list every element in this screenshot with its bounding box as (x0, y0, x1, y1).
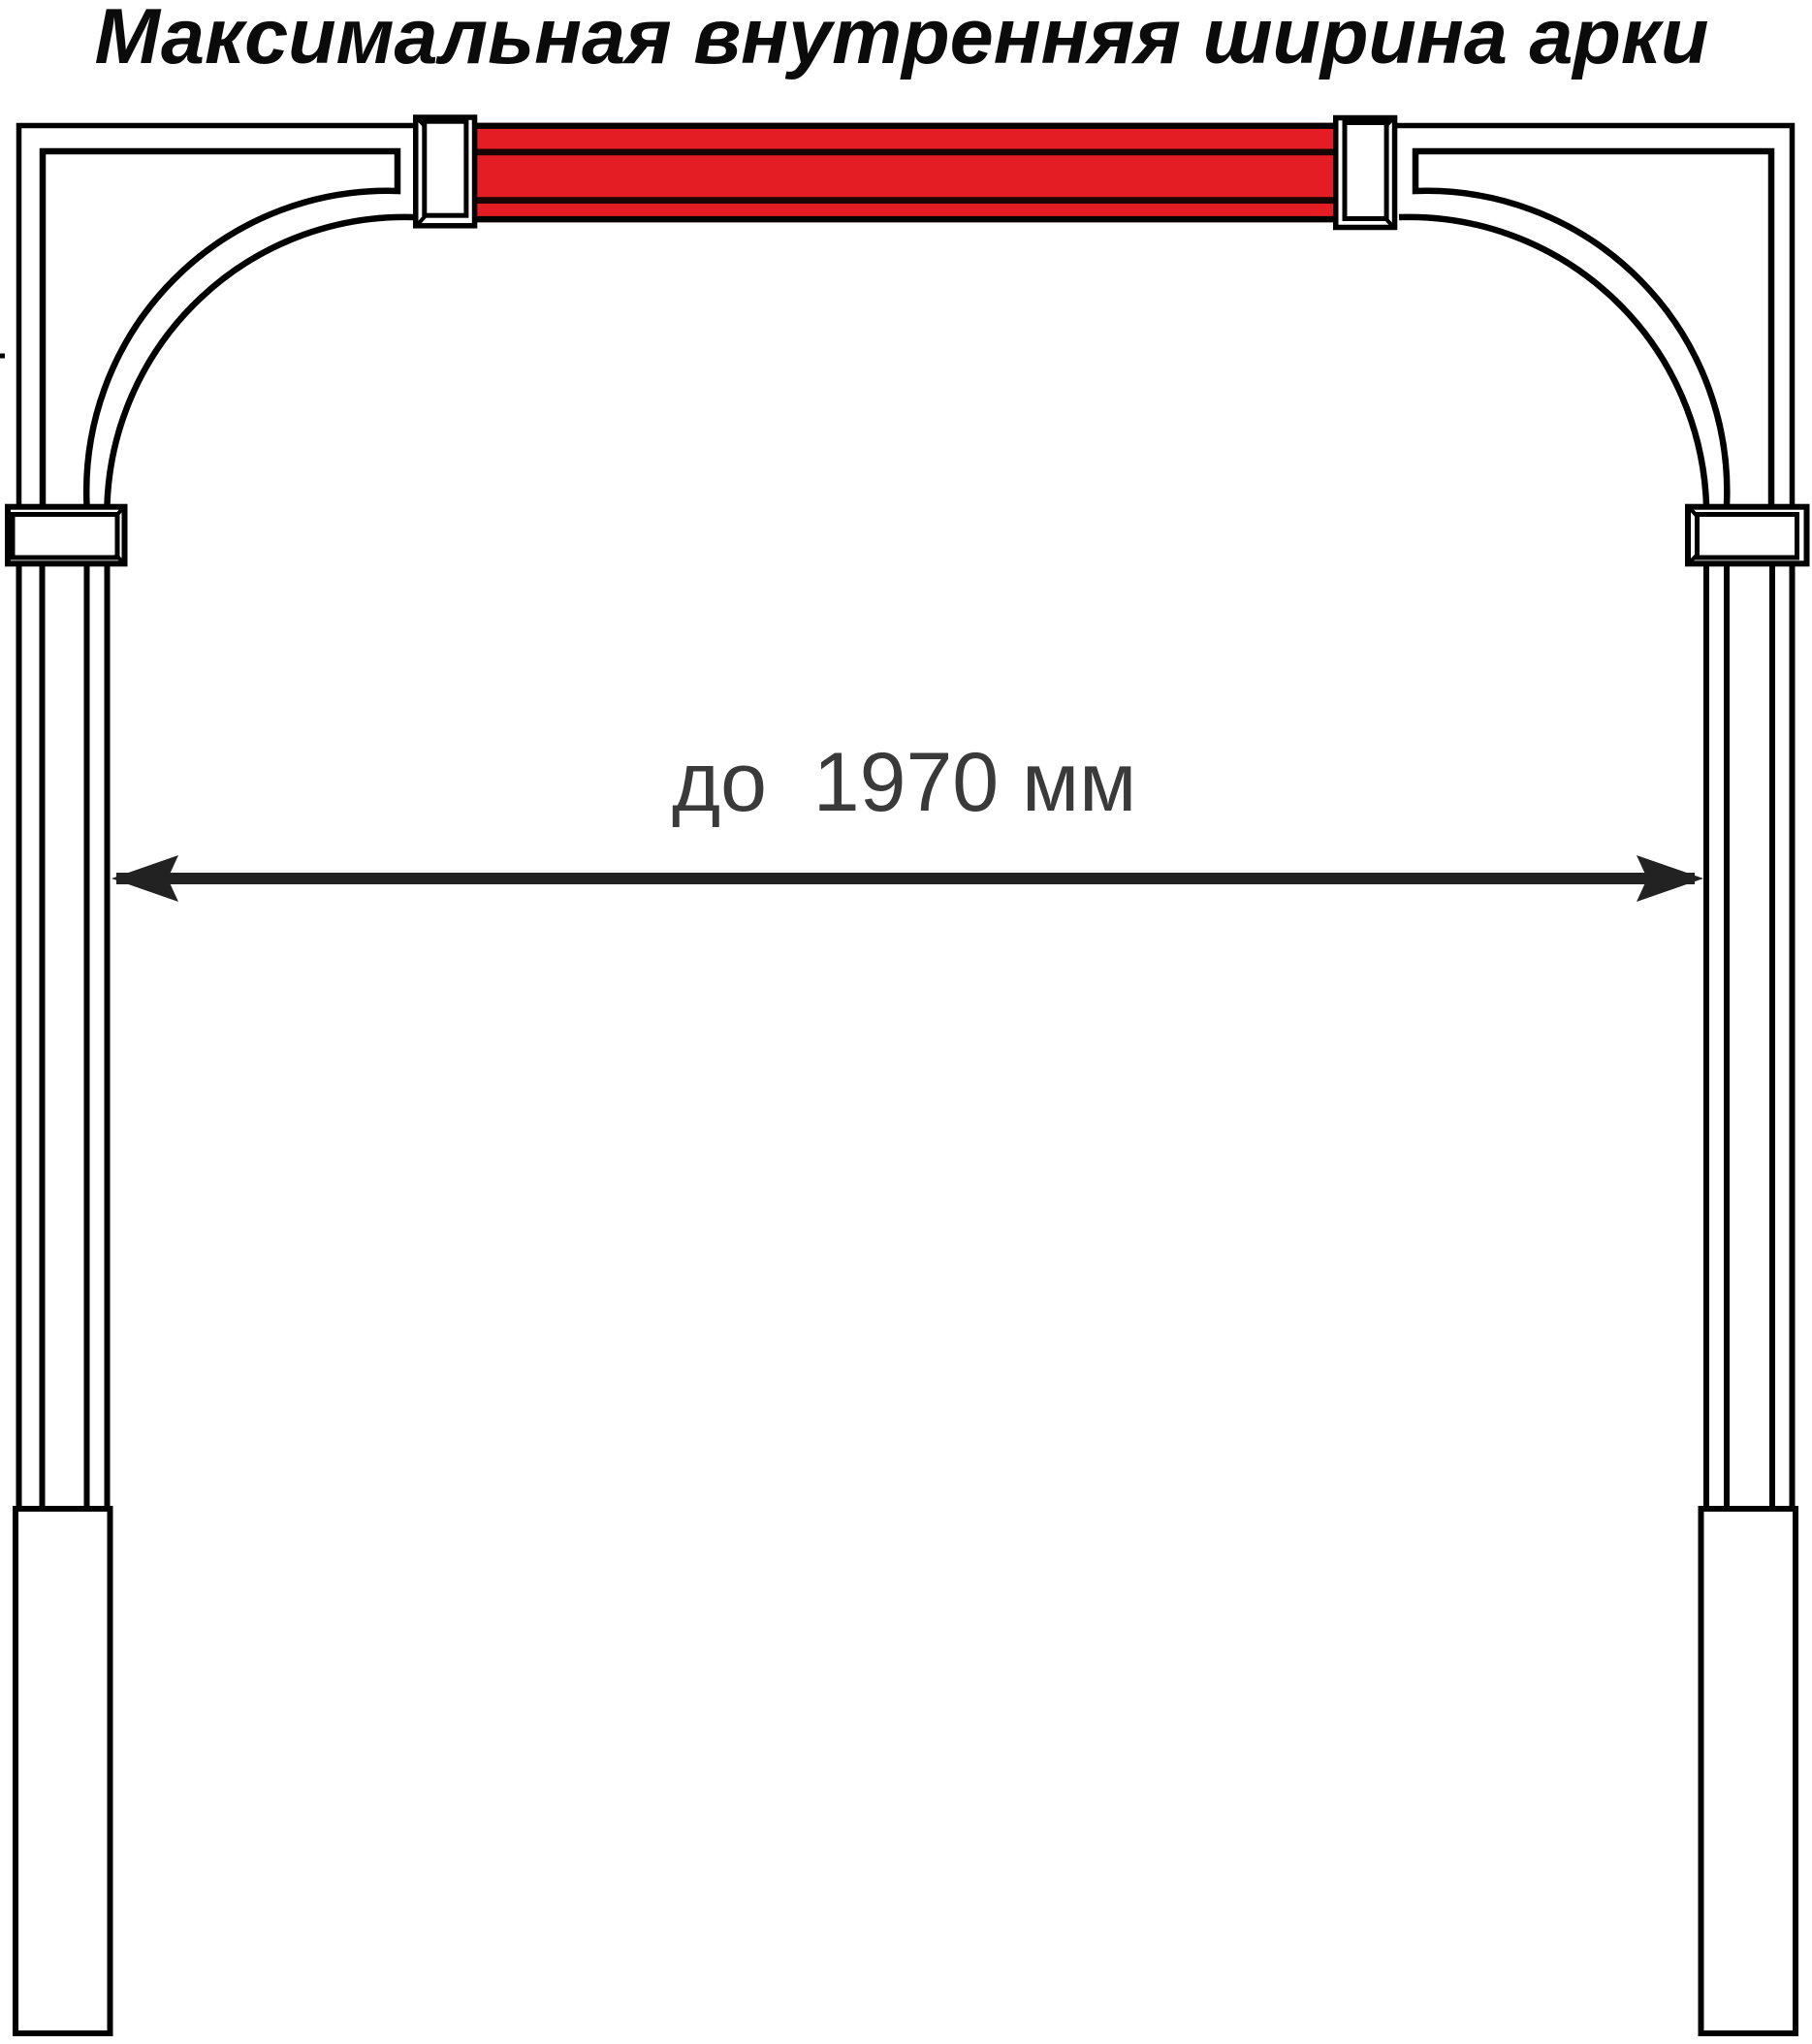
svg-text:Максимальная внутренняя ширина: Максимальная внутренняя ширина арки (95, 0, 1709, 80)
svg-text:до 1970 мм: до 1970 мм (672, 736, 1136, 829)
